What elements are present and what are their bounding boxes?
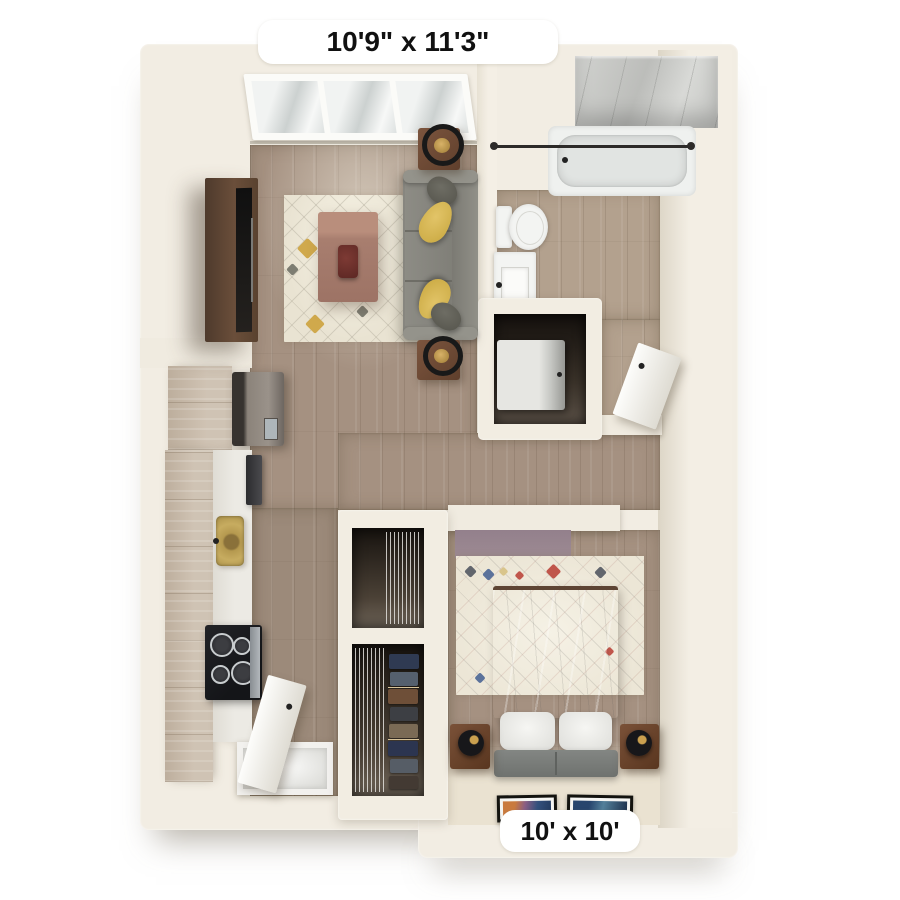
folded-clothes bbox=[389, 724, 418, 738]
window-pane bbox=[395, 81, 468, 133]
round-lamp-bottom bbox=[423, 336, 463, 376]
rug-motif-red bbox=[515, 571, 525, 581]
bed-duvet bbox=[493, 586, 618, 718]
folded-clothes bbox=[390, 759, 418, 773]
bed-pillow-left bbox=[500, 712, 555, 750]
nightstand-lamp-right bbox=[626, 730, 652, 756]
closet-wire-shelves bbox=[386, 532, 420, 624]
closet-upper-opening bbox=[352, 528, 424, 628]
window-pane bbox=[251, 81, 324, 133]
stove-burner bbox=[210, 633, 234, 657]
refrigerator bbox=[232, 372, 284, 446]
floor-plan: 10'9" x 11'3" 10' x 10' bbox=[0, 0, 900, 900]
rug-motif-gray bbox=[464, 565, 477, 578]
closet-block bbox=[338, 510, 448, 820]
window-pane bbox=[323, 81, 396, 133]
toilet-seat-line bbox=[516, 211, 544, 245]
rug-diamond-yellow bbox=[305, 314, 325, 334]
shower-rod bbox=[495, 145, 691, 148]
sofa bbox=[403, 170, 478, 340]
shower-rod-hook bbox=[687, 142, 695, 150]
vanity-sink-basin bbox=[501, 267, 529, 302]
folded-clothes bbox=[388, 741, 418, 756]
bedroom-wall-blanket bbox=[455, 530, 571, 558]
bathtub bbox=[548, 126, 696, 196]
sink-faucet bbox=[213, 538, 219, 544]
lamp-gold-center bbox=[434, 349, 449, 363]
bed-headboard bbox=[494, 750, 618, 777]
rug-diamond-yellow bbox=[297, 238, 318, 259]
headboard-seam bbox=[555, 752, 557, 775]
lamp-gold-center bbox=[434, 138, 450, 153]
door-handle bbox=[285, 703, 292, 710]
coffee-table bbox=[318, 212, 378, 302]
bedroom-dimension-label: 10' x 10' bbox=[500, 810, 640, 852]
bed-pillow-right bbox=[559, 712, 612, 750]
laundry-closet-interior bbox=[494, 314, 586, 424]
folded-clothes bbox=[390, 672, 418, 686]
vanity-faucet bbox=[496, 282, 502, 288]
shower-rod-hook bbox=[490, 142, 498, 150]
refrigerator-display bbox=[264, 418, 278, 440]
rug-motif-tan bbox=[499, 567, 509, 577]
tv bbox=[236, 188, 252, 333]
stove-cooktop bbox=[205, 625, 262, 700]
hallway-floor bbox=[338, 433, 660, 510]
washer-handle bbox=[557, 372, 562, 377]
rug-motif-gray bbox=[594, 566, 607, 579]
stove-burner bbox=[211, 665, 230, 684]
bathtub-basin bbox=[557, 135, 687, 187]
stove-burner bbox=[233, 637, 251, 655]
closet-shelf-edge bbox=[388, 739, 419, 740]
laundry-closet bbox=[478, 298, 602, 440]
rug-motif-blue bbox=[482, 568, 495, 581]
washer-dryer-unit bbox=[497, 340, 565, 410]
rug-diamond-gray bbox=[356, 305, 369, 318]
door-handle bbox=[638, 362, 646, 370]
folded-clothes bbox=[389, 654, 419, 669]
folded-clothes bbox=[390, 707, 418, 721]
wall-kitchen-return bbox=[140, 338, 252, 368]
shower-marble-surround bbox=[575, 56, 718, 128]
kitchen-sink-gold bbox=[216, 516, 244, 566]
living-room-dimension-label: 10'9" x 11'3" bbox=[258, 20, 558, 64]
closet-shelf-edge bbox=[388, 687, 419, 688]
bathtub-drain bbox=[562, 157, 568, 163]
rug-motif-red bbox=[546, 564, 562, 580]
kitchen-pantry-cabinet bbox=[168, 366, 232, 450]
coffee-table-tray bbox=[338, 245, 358, 278]
wall-bedroom-north bbox=[448, 505, 620, 531]
folded-clothes bbox=[388, 689, 418, 704]
built-in-oven bbox=[246, 455, 262, 505]
closet-lower-opening bbox=[352, 644, 424, 796]
tv-stand-line bbox=[251, 218, 253, 302]
nightstand-lamp-left bbox=[458, 730, 484, 756]
kitchen-cabinets bbox=[165, 450, 213, 782]
rug-diamond-gray bbox=[286, 263, 299, 276]
tv-console bbox=[205, 178, 258, 342]
closet-wire-shelves bbox=[355, 648, 387, 792]
round-lamp-top bbox=[422, 124, 464, 166]
rug-motif-blue bbox=[474, 672, 485, 683]
stove-control-panel bbox=[250, 627, 260, 698]
folded-clothes bbox=[389, 776, 418, 789]
